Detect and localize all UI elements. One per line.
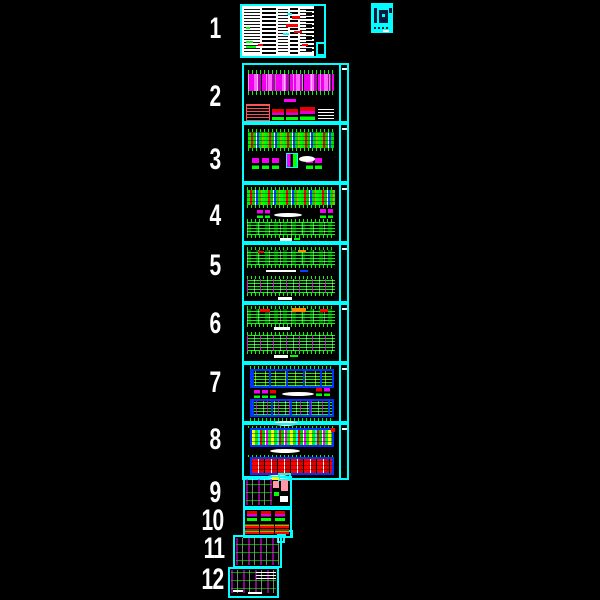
vline-shape bbox=[339, 65, 341, 121]
plant-m-shape bbox=[320, 209, 326, 218]
band-greenmag-shape bbox=[247, 335, 335, 351]
cloud-shape bbox=[282, 392, 314, 396]
white-lines-shape bbox=[318, 108, 334, 119]
ticks-shape bbox=[247, 293, 335, 296]
mark-shape bbox=[258, 251, 264, 253]
txt-thin-shape bbox=[278, 9, 288, 53]
plant-red-shape bbox=[260, 524, 274, 534]
document-icon-glyph bbox=[389, 8, 392, 13]
mark-shape bbox=[274, 492, 279, 496]
cloud-shape bbox=[270, 449, 300, 453]
mark-shape bbox=[300, 270, 308, 272]
band-mixed-shape bbox=[248, 132, 334, 148]
drawing-canvas: 123456789101112 bbox=[0, 0, 600, 600]
plant-m-shape bbox=[262, 390, 268, 398]
sheet-number-8: 8 bbox=[205, 425, 226, 455]
mark-shape bbox=[246, 41, 253, 43]
plant-m-shape bbox=[262, 158, 269, 169]
mark-shape bbox=[342, 128, 347, 130]
band-magenta-shape bbox=[248, 74, 334, 91]
plant-red-shape bbox=[245, 524, 259, 534]
mark-shape bbox=[331, 428, 335, 432]
vline-shape bbox=[339, 125, 341, 181]
mark-shape bbox=[272, 477, 279, 480]
band-blue-greenmag-shape bbox=[250, 399, 334, 417]
plant-m-shape bbox=[265, 210, 270, 218]
plant-m-shape bbox=[328, 209, 333, 218]
band-green2-shape bbox=[247, 222, 335, 235]
plant-r-shape bbox=[316, 388, 322, 396]
mark-shape bbox=[320, 309, 328, 312]
sheet-number-12: 12 bbox=[202, 565, 223, 595]
sheet-number-6: 6 bbox=[205, 309, 226, 339]
ticks-shape bbox=[247, 205, 335, 208]
mark-shape bbox=[342, 248, 347, 250]
mark-shape bbox=[294, 31, 302, 33]
txt-dense-shape bbox=[262, 8, 276, 54]
mark-shape bbox=[266, 270, 296, 272]
sheet-number-2: 2 bbox=[205, 82, 226, 112]
mark-shape bbox=[258, 44, 263, 46]
mark-shape bbox=[273, 481, 279, 488]
mark-shape bbox=[286, 24, 298, 27]
mark-shape bbox=[302, 44, 308, 46]
band-blue-green-shape bbox=[250, 369, 334, 388]
mark-shape bbox=[274, 327, 290, 330]
plant-m-shape bbox=[272, 158, 279, 169]
table-red-shape bbox=[246, 104, 270, 121]
plant-shape bbox=[300, 107, 315, 120]
plant-m-shape bbox=[257, 210, 263, 218]
mark-shape bbox=[284, 99, 296, 102]
mark-shape bbox=[292, 16, 300, 19]
mark-shape bbox=[246, 27, 250, 29]
mark-shape bbox=[233, 590, 243, 592]
ticks-shape bbox=[247, 324, 335, 327]
mark-shape bbox=[283, 33, 289, 35]
mark-shape bbox=[280, 496, 288, 502]
vline-shape bbox=[339, 365, 341, 421]
mark-shape bbox=[290, 355, 298, 357]
mark-shape bbox=[342, 368, 347, 370]
mark-shape bbox=[342, 428, 347, 430]
sheet-number-7: 7 bbox=[205, 368, 226, 398]
mark-shape bbox=[246, 46, 256, 48]
ticks-shape bbox=[248, 148, 334, 151]
plant-shape bbox=[272, 109, 284, 120]
plant-shape bbox=[286, 109, 298, 120]
vline-shape bbox=[339, 425, 341, 478]
mark-shape bbox=[248, 592, 262, 594]
ticks-shape bbox=[247, 351, 335, 354]
band-greenmag-shape bbox=[247, 279, 335, 293]
plant-shape bbox=[261, 511, 271, 521]
mark-shape bbox=[260, 309, 270, 312]
txt-dense-shape bbox=[306, 9, 314, 53]
mark-shape bbox=[298, 250, 306, 252]
plant-shape bbox=[275, 511, 285, 521]
plant-red-shape bbox=[275, 524, 289, 534]
mark-shape bbox=[280, 238, 292, 241]
band-blue-red-shape bbox=[250, 457, 334, 475]
sheet-number-3: 3 bbox=[205, 145, 226, 175]
vline-shape bbox=[339, 245, 341, 301]
sheet-number-1: 1 bbox=[205, 14, 226, 44]
document-icon-glyph bbox=[374, 8, 377, 23]
mark-shape bbox=[342, 68, 347, 70]
vline-shape bbox=[339, 305, 341, 361]
document-icon-glyph bbox=[383, 30, 389, 32]
sheet-number-5: 5 bbox=[205, 251, 226, 281]
plant-m-shape bbox=[252, 158, 259, 169]
mark-shape bbox=[274, 355, 288, 358]
band-blue-mixed-shape bbox=[250, 428, 334, 447]
white-lines-shape bbox=[256, 571, 276, 579]
scatter-shape bbox=[246, 479, 272, 505]
ticks-shape bbox=[248, 91, 334, 95]
plant-shape bbox=[247, 511, 257, 521]
scatter-shape bbox=[236, 538, 279, 565]
stub-shape bbox=[316, 42, 326, 56]
mark-shape bbox=[342, 188, 347, 190]
minibox-shape bbox=[286, 153, 298, 168]
document-icon[interactable] bbox=[371, 3, 393, 33]
sheet-number-4: 4 bbox=[205, 201, 226, 231]
vline-shape bbox=[339, 185, 341, 241]
mark-shape bbox=[281, 480, 288, 491]
plant-r-shape bbox=[270, 390, 276, 398]
mark-shape bbox=[292, 308, 306, 312]
cloud-shape bbox=[274, 213, 302, 217]
cloud-shape bbox=[299, 156, 315, 162]
document-icon-glyph bbox=[374, 27, 389, 29]
mark-shape bbox=[294, 238, 300, 240]
plant-m-shape bbox=[315, 158, 322, 169]
sheet-number-11: 11 bbox=[204, 534, 225, 564]
document-icon-glyph bbox=[382, 14, 385, 17]
mark-shape bbox=[342, 308, 347, 310]
mark-shape bbox=[287, 13, 292, 15]
plant-m-shape bbox=[324, 388, 330, 396]
ticks-shape bbox=[247, 265, 335, 268]
plant-m-shape bbox=[254, 390, 260, 398]
mark-shape bbox=[278, 297, 292, 300]
band-mixed-shape bbox=[247, 190, 335, 205]
